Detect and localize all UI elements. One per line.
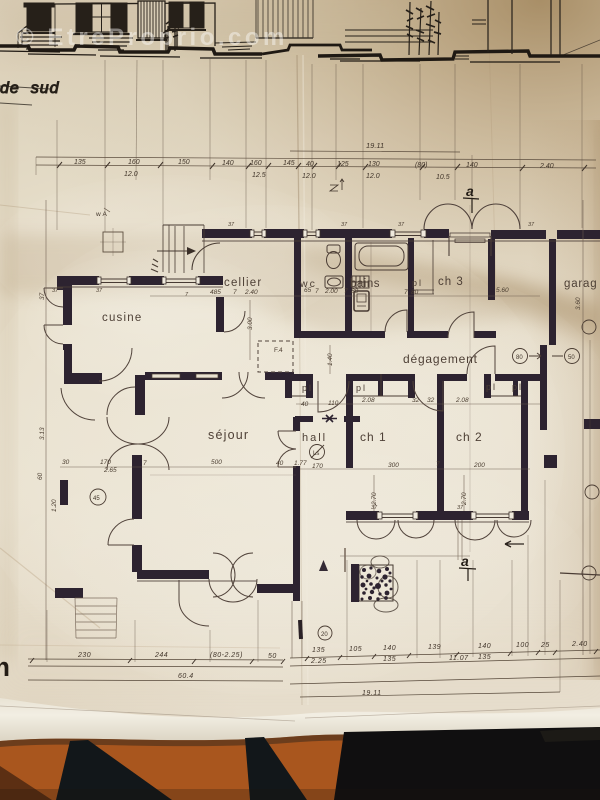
svg-text:2.40: 2.40: [571, 641, 588, 648]
svg-text:7: 7: [315, 288, 319, 295]
svg-text:135: 135: [478, 654, 491, 661]
svg-text:30: 30: [62, 459, 70, 466]
svg-text:170: 170: [100, 459, 111, 466]
svg-text:ch 1: ch 1: [360, 430, 387, 444]
svg-text:50: 50: [568, 355, 575, 361]
svg-text:cellier: cellier: [224, 277, 262, 289]
svg-text:5.60: 5.60: [496, 287, 509, 294]
svg-text:37: 37: [52, 288, 59, 294]
svg-text:139: 139: [428, 644, 441, 651]
svg-text:2.40: 2.40: [244, 289, 258, 296]
svg-text:170: 170: [312, 463, 323, 470]
svg-text:dégagement: dégagement: [403, 352, 478, 366]
svg-text:145: 145: [283, 160, 295, 167]
svg-text:135: 135: [74, 159, 86, 166]
svg-text:100: 100: [516, 642, 529, 649]
svg-text:37: 37: [457, 505, 464, 511]
svg-text:7: 7: [344, 288, 348, 295]
svg-text:(80): (80): [415, 162, 427, 169]
svg-text:1.77: 1.77: [294, 460, 307, 467]
svg-text:7: 7: [233, 289, 237, 296]
svg-text:1.20: 1.20: [51, 499, 58, 512]
svg-text:200: 200: [473, 462, 485, 469]
svg-text:37: 37: [528, 222, 535, 228]
svg-text:60.4: 60.4: [178, 673, 194, 680]
svg-text:3.13: 3.13: [39, 427, 46, 440]
svg-text:pl: pl: [512, 382, 523, 392]
svg-text:125: 125: [337, 161, 349, 168]
svg-text:cusine: cusine: [102, 312, 142, 324]
svg-text:2.40: 2.40: [539, 163, 554, 170]
svg-text:45: 45: [93, 496, 100, 502]
svg-text:40: 40: [306, 161, 314, 168]
svg-text:12.0: 12.0: [366, 173, 380, 180]
svg-text:12.0: 12.0: [124, 171, 138, 178]
svg-text:2.65: 2.65: [103, 467, 117, 474]
svg-text:40: 40: [301, 401, 309, 408]
svg-text:7: 7: [143, 460, 147, 467]
svg-text:32: 32: [412, 397, 420, 404]
svg-text:19.11: 19.11: [366, 141, 384, 150]
svg-text:3.60: 3.60: [575, 297, 582, 310]
svg-text:25: 25: [540, 642, 550, 649]
svg-text:hall: hall: [302, 432, 327, 444]
svg-text:150: 150: [178, 159, 190, 166]
svg-text:50: 50: [268, 653, 277, 660]
svg-text:105: 105: [349, 646, 362, 653]
svg-text:140: 140: [466, 162, 478, 169]
svg-text:110: 110: [328, 400, 339, 407]
svg-text:7: 7: [404, 289, 408, 296]
svg-text:500: 500: [211, 459, 222, 466]
svg-text:37: 37: [341, 222, 348, 228]
svg-text:w A: w A: [95, 211, 108, 218]
svg-text:10.5: 10.5: [436, 174, 450, 181]
svg-text:de sud: de sud: [0, 80, 60, 97]
svg-text:pl: pl: [486, 382, 497, 392]
svg-text:37: 37: [371, 505, 378, 511]
svg-text:pl: pl: [356, 383, 367, 393]
svg-text:130: 130: [368, 161, 380, 168]
svg-text:140: 140: [383, 645, 396, 652]
svg-text:garag: garag: [564, 278, 597, 290]
svg-text:244: 244: [154, 652, 168, 659]
svg-text:140: 140: [478, 643, 491, 650]
svg-text:37: 37: [96, 288, 103, 294]
svg-text:pl: pl: [412, 278, 423, 288]
svg-text:11.07: 11.07: [449, 655, 469, 662]
svg-text:ch 3: ch 3: [438, 276, 464, 288]
svg-text:37: 37: [398, 222, 405, 228]
svg-text:160: 160: [250, 160, 262, 167]
svg-text:2.70: 2.70: [371, 492, 378, 506]
svg-text:230: 230: [77, 652, 91, 659]
svg-text:20: 20: [321, 632, 328, 638]
svg-text:37: 37: [228, 222, 235, 228]
svg-text:140: 140: [222, 160, 234, 167]
svg-text:2.08: 2.08: [361, 397, 375, 404]
svg-text:2.70: 2.70: [461, 492, 468, 506]
svg-text:2.00: 2.00: [324, 288, 338, 295]
svg-text:300: 300: [388, 462, 399, 469]
svg-text:(80-2.25): (80-2.25): [210, 652, 243, 659]
svg-text:19.11: 19.11: [362, 690, 382, 697]
svg-text:80: 80: [351, 288, 359, 295]
svg-text:135: 135: [312, 647, 325, 654]
svg-text:ch 2: ch 2: [456, 430, 483, 444]
svg-text:2.25: 2.25: [310, 658, 327, 665]
svg-text:40: 40: [276, 460, 284, 467]
svg-text:12.5: 12.5: [252, 172, 266, 179]
svg-text:32: 32: [427, 397, 435, 404]
svg-text:pl: pl: [302, 383, 313, 393]
svg-text:Ls: Ls: [313, 451, 319, 457]
svg-text:135: 135: [383, 656, 396, 663]
svg-text:485: 485: [210, 289, 221, 296]
svg-text:1.40: 1.40: [327, 353, 334, 366]
svg-text:séjour: séjour: [208, 428, 249, 442]
svg-text:7: 7: [436, 461, 440, 468]
svg-text:12.0: 12.0: [302, 173, 316, 180]
svg-text:80: 80: [516, 355, 523, 361]
svg-text:37: 37: [39, 292, 46, 300]
svg-text:65: 65: [304, 287, 312, 294]
svg-text:160: 160: [128, 159, 140, 166]
svg-text:F.4: F.4: [274, 347, 283, 354]
svg-text:© EtreProprio.com: © EtreProprio.com: [16, 24, 288, 51]
svg-text:2.08: 2.08: [455, 397, 469, 404]
svg-text:a: a: [466, 183, 474, 199]
svg-text:80: 80: [411, 289, 419, 296]
svg-text:3.00: 3.00: [247, 317, 254, 330]
svg-text:m: m: [0, 652, 10, 682]
svg-text:60: 60: [37, 472, 44, 480]
